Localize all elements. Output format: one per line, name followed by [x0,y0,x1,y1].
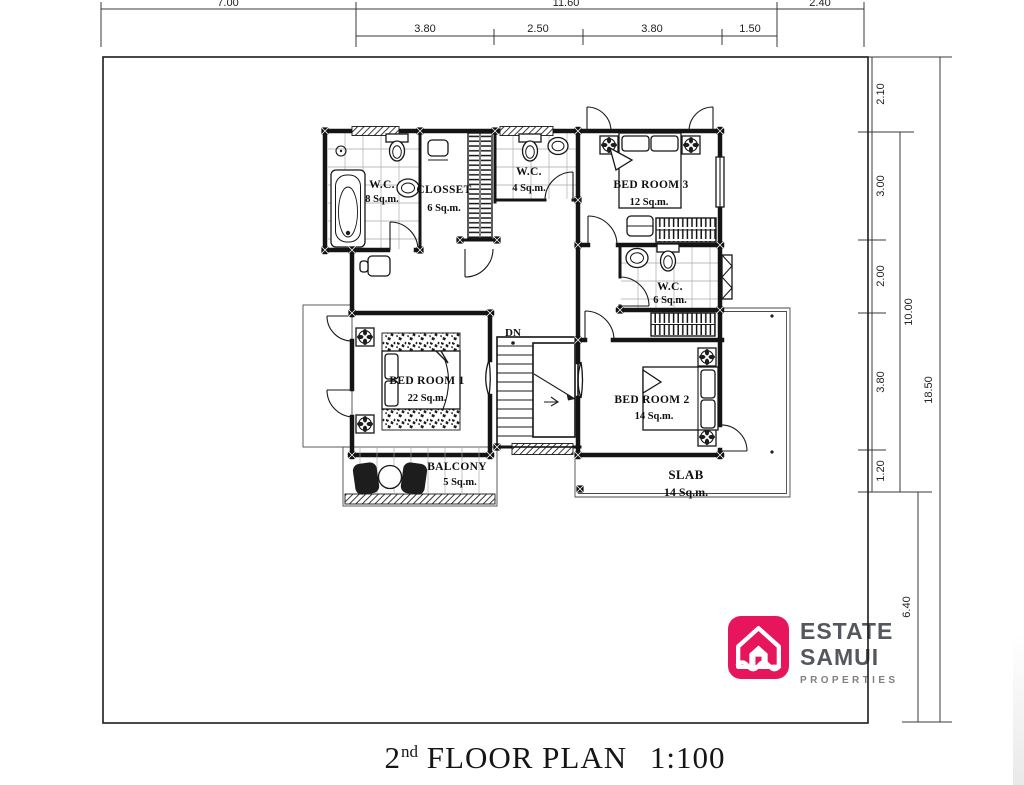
window-swing-bedroom1-lower [327,390,352,417]
toilet-icon [519,134,541,161]
room-area: 6 Sq.m. [427,203,461,214]
room-name: CLOSSET [416,184,471,196]
pillow [651,136,678,151]
ceiling-fan-icon [698,428,716,446]
door-swing-slab [720,425,747,451]
dim-label: 10.00 [903,298,915,326]
bed-headboard [382,333,460,351]
bed-footboard [382,409,460,430]
room-name: W.C. [516,166,542,178]
dim-label: 2.10 [875,83,887,104]
room-name: W.C. [657,281,683,293]
dim-label: 3.80 [875,371,887,392]
dim-label: 2.40 [809,0,830,9]
door-swing-wc6 [620,277,649,306]
room-area: 22 Sq.m. [408,393,447,404]
pillow [701,400,715,428]
door-leaf-bedroom1 [486,360,491,396]
room-name: SLAB [668,467,703,482]
dim-label: 1.50 [739,23,760,35]
pillow [701,370,715,398]
dim-label: 11.60 [553,0,580,9]
room-name: W.C. [369,179,395,191]
ceiling-fan-icon [356,328,374,346]
room-name: BED ROOM 1 [389,375,464,387]
duct-shaft [722,255,732,299]
desk [368,256,390,276]
room-name: BED ROOM 2 [614,394,689,406]
balcony-rail [345,494,495,504]
dim-label: 2.50 [527,23,548,35]
dim-label: 7.00 [217,0,238,9]
cabinet [428,140,448,156]
room-area: 5 Sq.m. [443,477,477,488]
room-area: 14 Sq.m. [635,411,674,422]
ceiling-fan-icon [356,415,374,433]
left-bay-outline [303,305,352,447]
ceiling-fan-icon [698,348,716,366]
room-wc4 [519,134,568,161]
dim-label: 3.80 [641,23,662,35]
dim-label: 1.20 [875,460,887,481]
dim-label: 18.50 [923,376,935,404]
window-swing-bedroom3-left [587,107,611,131]
toilet-icon [386,134,408,161]
pillow [622,136,649,151]
armchair [400,461,428,495]
staircase [497,337,578,447]
room-area: 6 Sq.m. [653,295,687,306]
room-bedroom1 [356,256,460,433]
door-swing-bedroom2 [585,311,614,340]
washbasin-icon [626,249,648,268]
washbasin-icon [548,138,568,155]
window-sill [512,444,573,455]
door-swing-hall [465,249,493,277]
stair-direction-arrow [567,394,576,401]
right-dimension-columns: 2.10 3.00 2.00 3.80 1.20 10.00 6.40 18.5… [856,57,952,722]
window-swing-bedroom1-upper [327,316,352,341]
room-area: 8 Sq.m. [365,194,399,205]
floor-plan-page: ESTATE SAMUI PROPERTIES [0,0,1024,785]
door-swing-wc8 [390,222,418,250]
round-table [379,466,402,489]
toilet-icon [657,244,679,271]
armchair [352,461,380,495]
door-swing-bedroom3 [588,216,617,245]
room-area: 14 Sq.m. [664,485,708,499]
dim-label: 3.00 [875,175,887,196]
top-dimension-rows: 7.00 11.60 2.40 3.80 2.50 3.80 1.50 [101,0,864,47]
dim-label: 2.00 [875,265,887,286]
dim-label: 6.40 [901,596,913,617]
ceiling-fan-icon [682,136,700,154]
window-swing-bedroom3-right [689,107,713,131]
stairs-leader-dot [511,341,515,345]
chair [360,261,368,272]
dim-label: 3.80 [414,23,435,35]
floor-plan-drawing: 7.00 11.60 2.40 3.80 2.50 3.80 1.50 2 [0,0,1024,785]
room-name: BALCONY [427,461,487,473]
stairs-direction-label: DN [505,327,521,339]
room-area: 12 Sq.m. [630,197,669,208]
room-name: BED ROOM 3 [613,179,688,191]
room-area: 4 Sq.m. [512,183,546,194]
